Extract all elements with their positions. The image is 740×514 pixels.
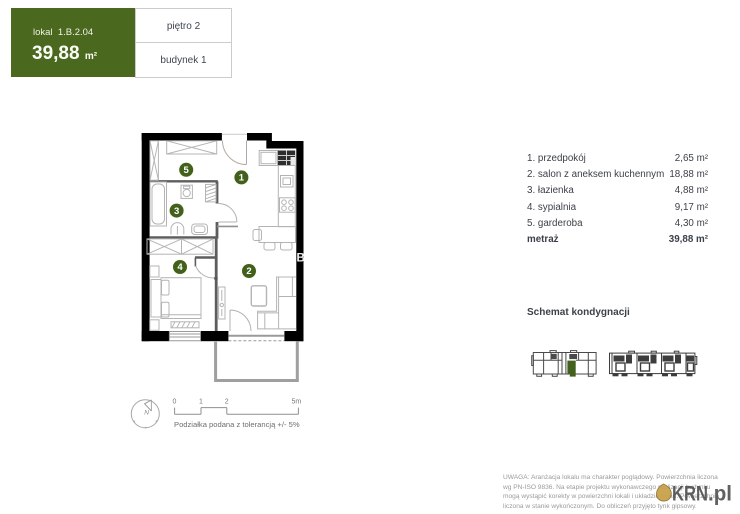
svg-text:KRN: KRN bbox=[672, 481, 708, 505]
svg-text:3: 3 bbox=[174, 206, 179, 217]
svg-text:0: 0 bbox=[173, 399, 177, 406]
svg-text:2: 2 bbox=[246, 266, 251, 277]
svg-text:1: 1 bbox=[239, 173, 245, 184]
svg-text:2: 2 bbox=[225, 399, 229, 406]
svg-text:B: B bbox=[297, 253, 305, 265]
svg-text:1: 1 bbox=[199, 399, 203, 406]
svg-text:5: 5 bbox=[184, 165, 190, 176]
svg-text:.pl: .pl bbox=[708, 481, 732, 505]
svg-text:4: 4 bbox=[177, 262, 183, 273]
svg-text:5m: 5m bbox=[292, 399, 302, 406]
svg-text:N: N bbox=[144, 410, 149, 417]
